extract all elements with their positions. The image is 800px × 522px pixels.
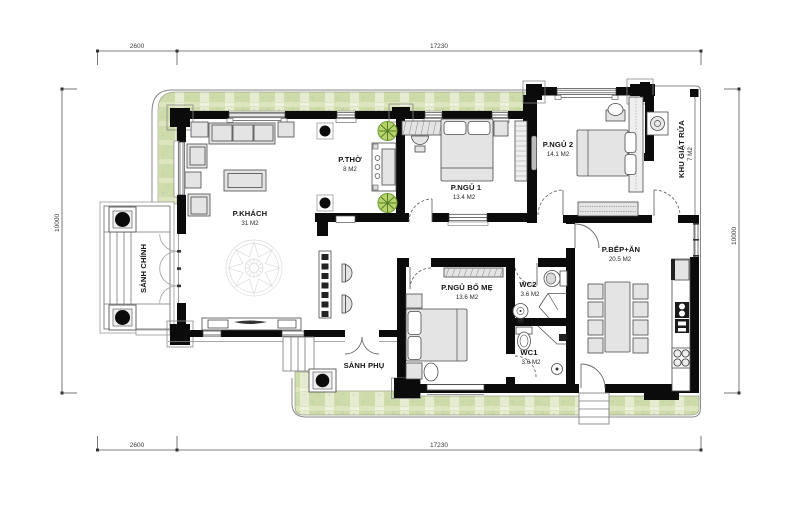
svg-text:P.KHÁCH: P.KHÁCH xyxy=(233,209,268,218)
svg-text:14.1 M2: 14.1 M2 xyxy=(547,151,570,158)
svg-text:17230: 17230 xyxy=(430,442,448,449)
svg-text:P.NGỦ BỐ MẸ: P.NGỦ BỐ MẸ xyxy=(441,282,493,292)
svg-text:31 M2: 31 M2 xyxy=(241,220,259,227)
svg-text:3.6 M2: 3.6 M2 xyxy=(522,359,541,366)
svg-text:SẢNH CHÍNH: SẢNH CHÍNH xyxy=(139,244,148,293)
svg-text:17230: 17230 xyxy=(430,43,448,50)
svg-text:13.6 M2: 13.6 M2 xyxy=(456,294,479,301)
svg-text:3.6 M2: 3.6 M2 xyxy=(521,291,540,298)
svg-text:8 M2: 8 M2 xyxy=(343,166,357,173)
svg-text:P.THỜ: P.THỜ xyxy=(338,155,362,164)
svg-text:10000: 10000 xyxy=(54,214,61,232)
svg-text:7 M2: 7 M2 xyxy=(687,147,694,161)
svg-text:WC2: WC2 xyxy=(519,280,536,289)
svg-text:2600: 2600 xyxy=(130,43,145,50)
svg-text:20.5 M2: 20.5 M2 xyxy=(609,256,632,263)
svg-text:13.4 M2: 13.4 M2 xyxy=(453,194,476,201)
svg-text:10000: 10000 xyxy=(731,227,738,245)
svg-text:P.NGỦ 2: P.NGỦ 2 xyxy=(543,140,573,149)
svg-text:WC1: WC1 xyxy=(520,348,538,357)
svg-text:P.NGỦ 1: P.NGỦ 1 xyxy=(451,183,482,192)
svg-text:2600: 2600 xyxy=(130,442,145,449)
svg-text:SẢNH PHỤ: SẢNH PHỤ xyxy=(344,361,385,370)
svg-text:P.BẾP+ĂN: P.BẾP+ĂN xyxy=(602,244,640,254)
svg-text:KHU GIẶT RỬA: KHU GIẶT RỬA xyxy=(677,120,686,178)
